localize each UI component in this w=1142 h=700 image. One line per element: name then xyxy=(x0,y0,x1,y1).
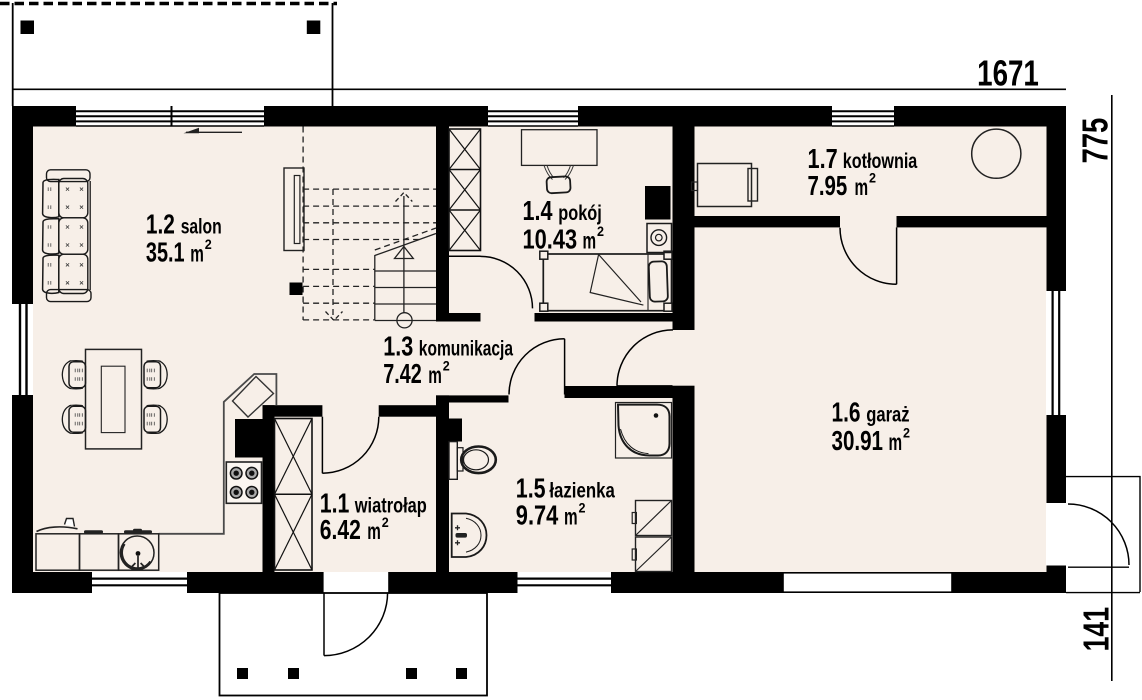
svg-text:1.2: 1.2 xyxy=(146,209,175,240)
svg-text:35.1: 35.1 xyxy=(146,237,185,268)
svg-text:2: 2 xyxy=(443,358,450,374)
svg-text:m: m xyxy=(428,362,442,388)
svg-text:7.42: 7.42 xyxy=(383,358,422,389)
svg-text:141: 141 xyxy=(1076,607,1117,652)
svg-text:2: 2 xyxy=(579,499,586,515)
svg-text:30.91: 30.91 xyxy=(832,425,884,456)
svg-text:m: m xyxy=(190,241,204,267)
svg-text:komunikacja: komunikacja xyxy=(419,338,513,361)
svg-text:2: 2 xyxy=(597,223,604,239)
svg-text:6.42: 6.42 xyxy=(320,514,361,545)
svg-text:kotłownia: kotłownia xyxy=(843,150,918,173)
svg-text:775: 775 xyxy=(1075,118,1116,164)
svg-text:wiatrołap: wiatrołap xyxy=(354,494,427,517)
svg-text:10.43: 10.43 xyxy=(523,224,578,255)
svg-text:m: m xyxy=(367,518,381,544)
svg-text:2: 2 xyxy=(869,170,876,186)
svg-text:1.4: 1.4 xyxy=(523,195,553,226)
svg-text:garaż: garaż xyxy=(866,404,909,427)
svg-text:7.95: 7.95 xyxy=(808,170,848,201)
svg-text:salon: salon xyxy=(181,216,222,239)
svg-text:1.6: 1.6 xyxy=(832,397,861,428)
svg-text:m: m xyxy=(855,174,869,200)
svg-text:1671: 1671 xyxy=(977,53,1039,94)
svg-text:9.74: 9.74 xyxy=(516,500,559,531)
svg-text:m: m xyxy=(583,228,597,254)
svg-text:2: 2 xyxy=(903,425,910,441)
svg-text:pokój: pokój xyxy=(558,202,602,225)
svg-text:m: m xyxy=(889,429,903,455)
svg-text:m: m xyxy=(564,504,578,530)
svg-text:2: 2 xyxy=(382,514,389,530)
svg-text:2: 2 xyxy=(205,236,212,252)
